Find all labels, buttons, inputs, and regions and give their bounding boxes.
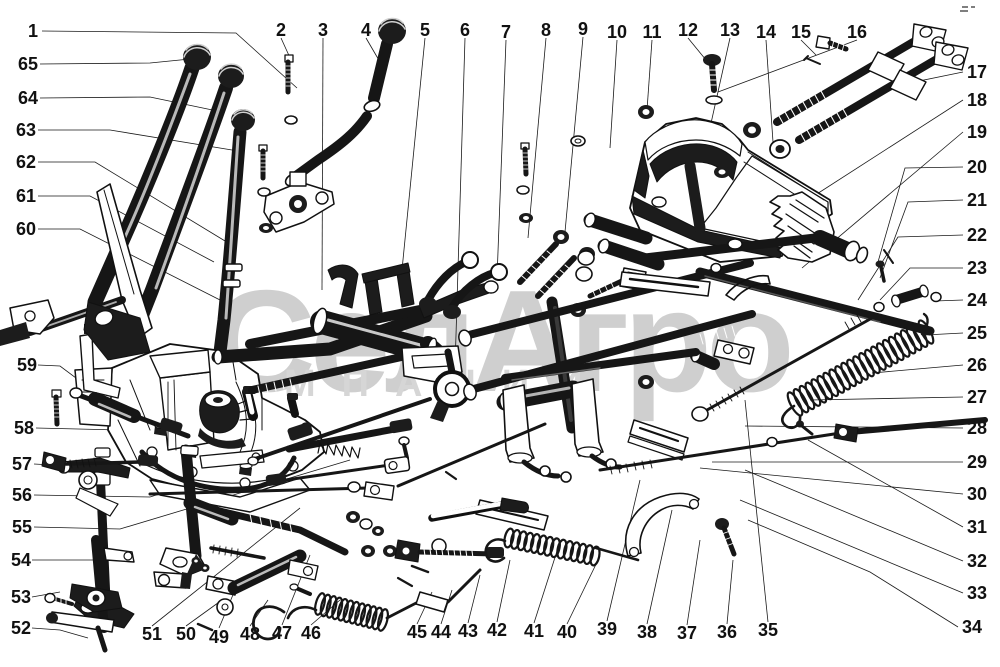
svg-text:35: 35 <box>758 620 778 640</box>
svg-text:57: 57 <box>12 454 32 474</box>
svg-text:21: 21 <box>967 190 987 210</box>
svg-text:16: 16 <box>847 22 867 42</box>
svg-text:14: 14 <box>756 22 776 42</box>
svg-text:12: 12 <box>678 20 698 40</box>
svg-text:15: 15 <box>791 22 811 42</box>
svg-text:60: 60 <box>16 219 36 239</box>
svg-text:36: 36 <box>717 622 737 642</box>
svg-text:51: 51 <box>142 624 162 644</box>
svg-text:63: 63 <box>16 120 36 140</box>
svg-text:56: 56 <box>12 485 32 505</box>
svg-text:42: 42 <box>487 620 507 640</box>
svg-text:5: 5 <box>420 20 430 40</box>
svg-text:1: 1 <box>28 21 38 41</box>
svg-text:43: 43 <box>458 621 478 641</box>
svg-text:45: 45 <box>407 622 427 642</box>
svg-text:47: 47 <box>272 623 292 643</box>
svg-text:31: 31 <box>967 517 987 537</box>
svg-text:10: 10 <box>607 22 627 42</box>
svg-text:55: 55 <box>12 517 32 537</box>
svg-text:23: 23 <box>967 258 987 278</box>
svg-text:30: 30 <box>967 484 987 504</box>
svg-text:27: 27 <box>967 387 987 407</box>
svg-text:58: 58 <box>14 418 34 438</box>
svg-text:33: 33 <box>967 583 987 603</box>
svg-text:29: 29 <box>967 452 987 472</box>
svg-text:59: 59 <box>17 355 37 375</box>
svg-text:37: 37 <box>677 623 697 643</box>
svg-text:17: 17 <box>967 62 987 82</box>
svg-text:18: 18 <box>967 90 987 110</box>
svg-text:11: 11 <box>642 22 661 42</box>
svg-text:9: 9 <box>578 19 588 39</box>
svg-text:24: 24 <box>967 290 987 310</box>
svg-text:50: 50 <box>176 624 196 644</box>
svg-text:40: 40 <box>557 622 577 642</box>
svg-text:19: 19 <box>967 122 987 142</box>
svg-text:38: 38 <box>637 622 657 642</box>
svg-text:7: 7 <box>501 22 511 42</box>
svg-text:44: 44 <box>431 622 451 642</box>
svg-text:6: 6 <box>460 20 470 40</box>
svg-text:2: 2 <box>276 20 286 40</box>
svg-text:32: 32 <box>967 551 987 571</box>
svg-text:34: 34 <box>962 617 982 637</box>
svg-text:52: 52 <box>11 618 31 638</box>
svg-text:39: 39 <box>597 619 617 639</box>
svg-text:25: 25 <box>967 323 987 343</box>
svg-text:53: 53 <box>11 587 31 607</box>
svg-text:64: 64 <box>18 88 38 108</box>
svg-text:41: 41 <box>524 621 544 641</box>
svg-text:3: 3 <box>318 20 328 40</box>
svg-text:26: 26 <box>967 355 987 375</box>
svg-text:54: 54 <box>11 550 31 570</box>
svg-text:46: 46 <box>301 623 321 643</box>
svg-text:61: 61 <box>16 186 36 206</box>
svg-text:22: 22 <box>967 225 987 245</box>
svg-text:65: 65 <box>18 54 38 74</box>
svg-text:4: 4 <box>361 20 371 40</box>
svg-text:20: 20 <box>967 157 987 177</box>
svg-text:13: 13 <box>720 20 740 40</box>
svg-text:62: 62 <box>16 152 36 172</box>
svg-text:8: 8 <box>541 20 551 40</box>
